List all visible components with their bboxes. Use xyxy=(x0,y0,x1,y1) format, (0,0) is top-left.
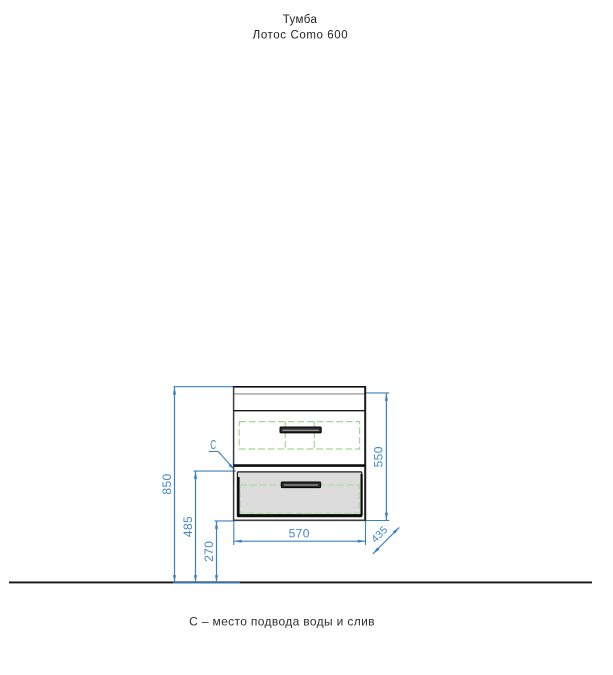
svg-text:Тумба: Тумба xyxy=(283,14,318,26)
svg-text:С – место подвода воды и слив: С – место подвода воды и слив xyxy=(189,614,375,628)
svg-text:485: 485 xyxy=(181,516,195,537)
svg-text:Лотос Como 600: Лотос Como 600 xyxy=(253,30,349,42)
svg-text:270: 270 xyxy=(202,541,216,562)
svg-text:570: 570 xyxy=(289,527,310,541)
svg-text:850: 850 xyxy=(160,473,174,494)
svg-text:550: 550 xyxy=(372,446,386,467)
svg-text:C: C xyxy=(210,438,216,452)
